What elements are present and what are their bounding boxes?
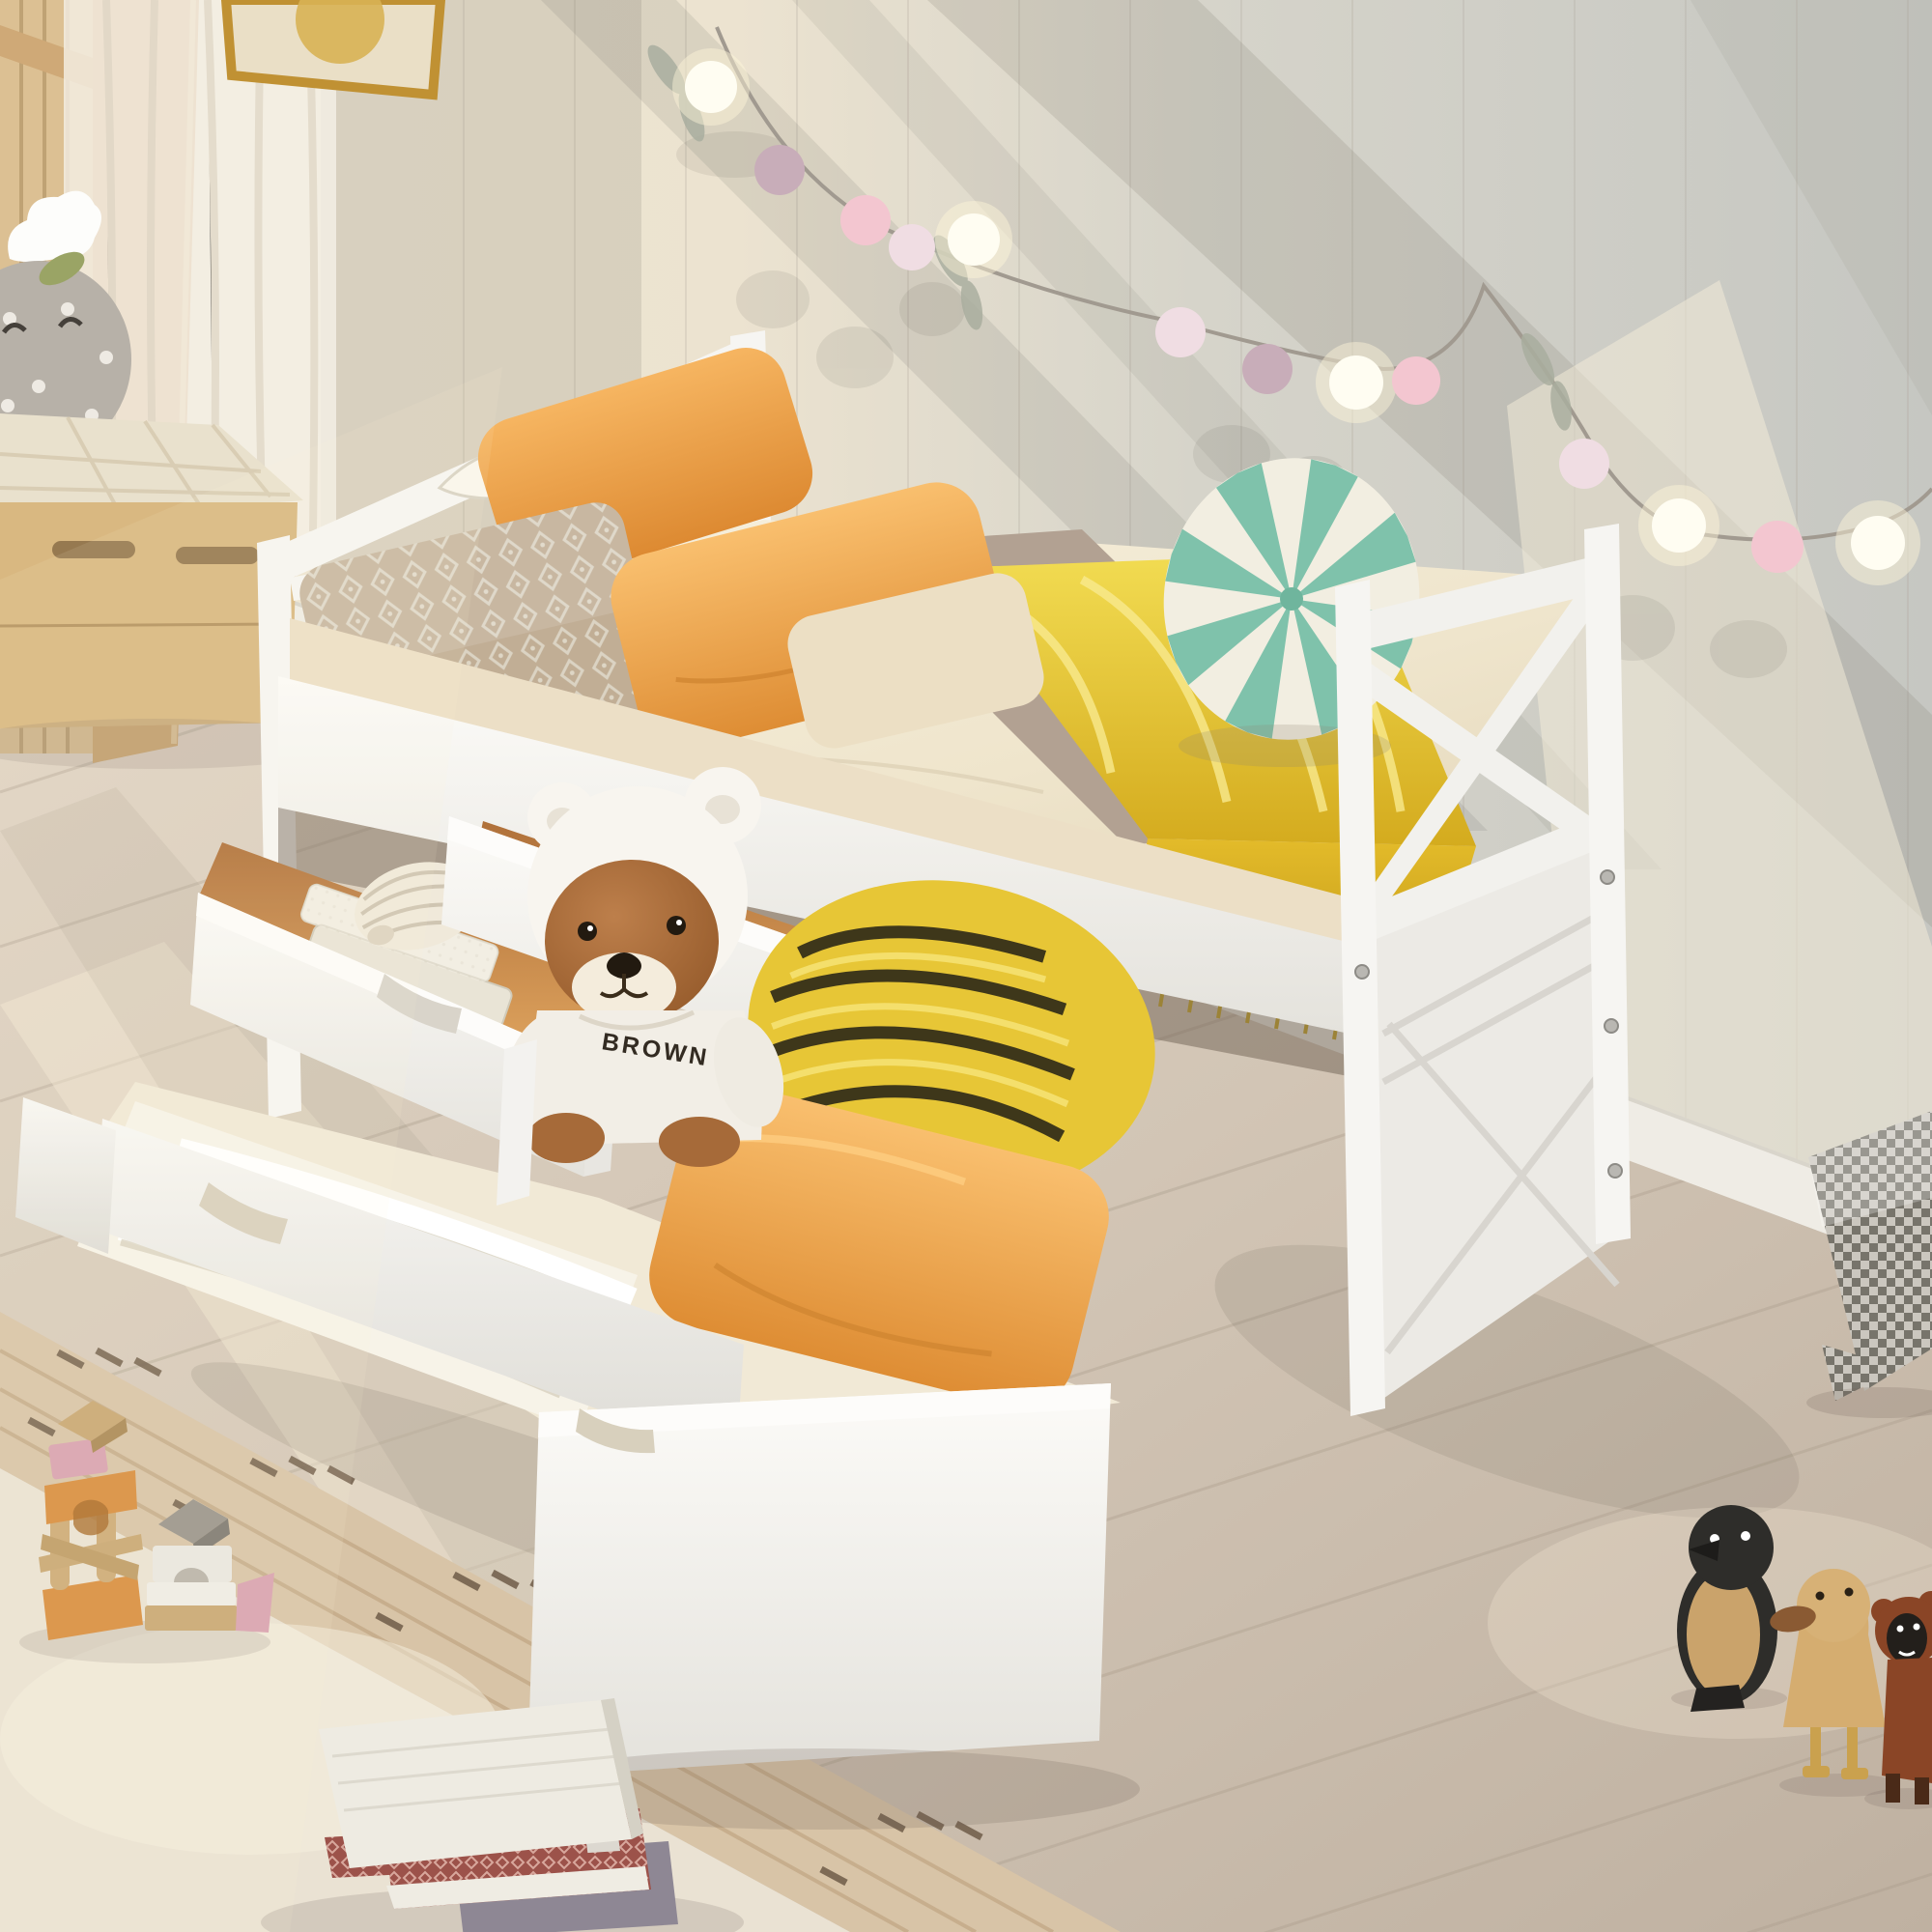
scene-canvas: BROWN (0, 0, 1932, 1932)
bulb-glow (1652, 498, 1706, 553)
bulb-blush (1155, 307, 1206, 357)
bulb-mauve (754, 145, 805, 195)
penguin-feet (1690, 1685, 1745, 1712)
bear-eye-left (578, 922, 597, 941)
bulb-blush (1559, 439, 1609, 489)
penguin-belly (1687, 1573, 1760, 1696)
framed-art (226, 0, 440, 95)
bear-eye-right (667, 916, 686, 935)
bear-leg-right (659, 1117, 740, 1167)
bulb-glow (685, 61, 737, 113)
bulb-glow (1329, 355, 1383, 410)
bulb-glow (948, 213, 1000, 266)
bulb-pink (1751, 521, 1804, 573)
kids-room-product-photo: BROWN (0, 0, 1932, 1932)
monkey-body (1882, 1658, 1932, 1783)
bulb-glow (1851, 516, 1905, 570)
bulb-blush (889, 224, 935, 270)
duck-head (1797, 1569, 1870, 1642)
bulb-mauve (1242, 344, 1293, 394)
bear-leg-left (527, 1113, 605, 1163)
bulb-pink (1392, 356, 1440, 405)
bulb-pink (840, 195, 891, 245)
duck-leg-left (1810, 1727, 1821, 1770)
duck-leg-right (1847, 1727, 1858, 1770)
